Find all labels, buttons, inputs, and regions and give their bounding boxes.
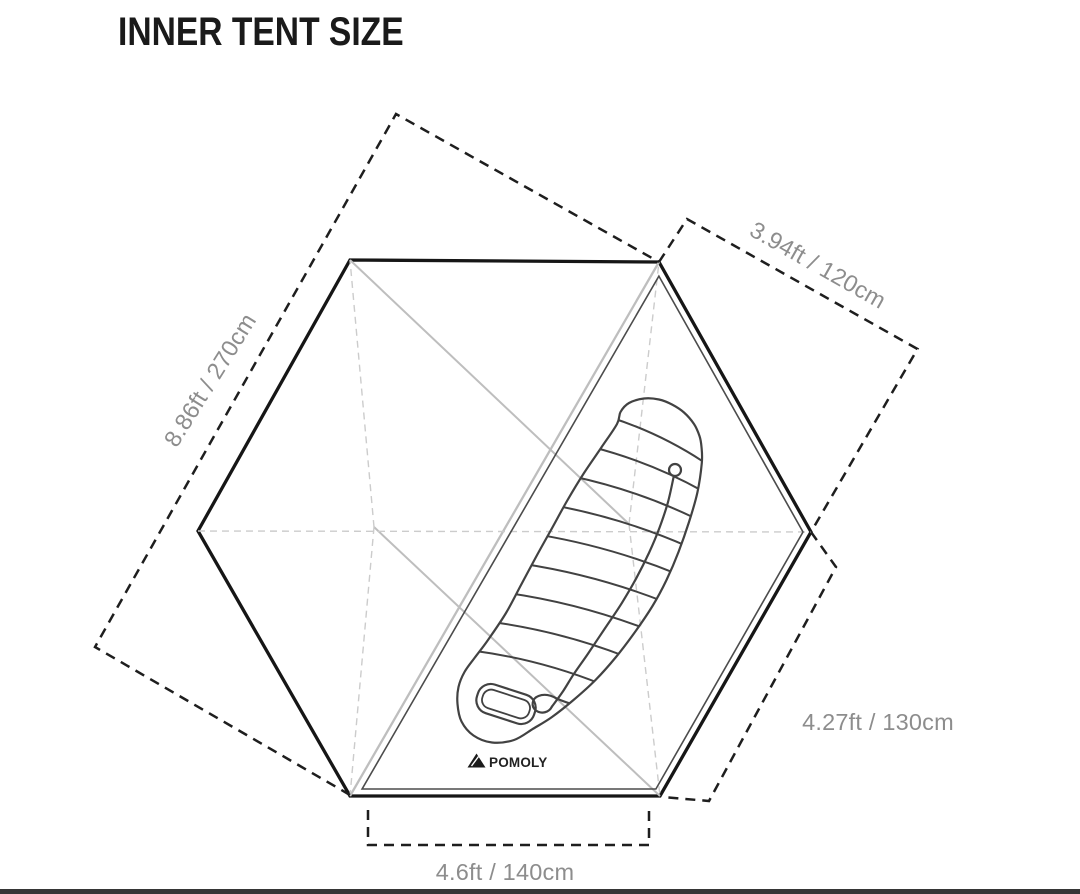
svg-text:POMOLY: POMOLY [489, 755, 547, 770]
svg-text:4.6ft / 140cm: 4.6ft / 140cm [436, 859, 574, 885]
svg-text:4.27ft / 130cm: 4.27ft / 130cm [802, 709, 954, 735]
